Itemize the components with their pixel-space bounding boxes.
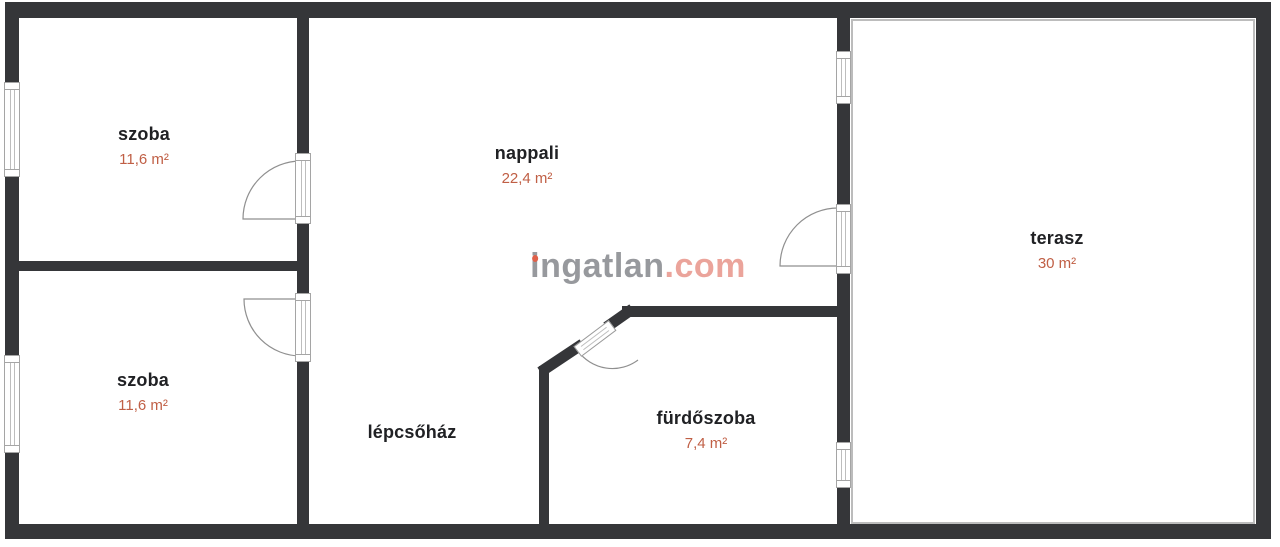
watermark-brand: ingatlan bbox=[530, 248, 664, 284]
watermark-i-dot-icon bbox=[532, 255, 539, 262]
room-label-szoba-top: szoba 11,6 m² bbox=[118, 123, 170, 170]
room-name: szoba bbox=[117, 369, 169, 391]
door-arc-furdoszoba bbox=[578, 351, 638, 369]
door-frame-nappali-terasz bbox=[836, 204, 851, 274]
room-name: terasz bbox=[1030, 227, 1083, 249]
room-area: 11,6 m² bbox=[117, 396, 169, 416]
door-arc-nappali-terasz bbox=[780, 208, 838, 266]
wall-diagonal-upper bbox=[611, 312, 628, 324]
room-name: fürdőszoba bbox=[657, 407, 756, 429]
door-frame-szoba-bottom bbox=[295, 293, 311, 362]
window-furdoszoba-terasz bbox=[836, 442, 851, 488]
window-terasz-top bbox=[836, 51, 851, 104]
floor-plan: szoba 11,6 m² szoba 11,6 m² nappali 22,4… bbox=[0, 0, 1280, 547]
room-label-nappali: nappali 22,4 m² bbox=[495, 142, 559, 189]
room-area: 11,6 m² bbox=[118, 150, 170, 170]
window-szoba-top bbox=[4, 82, 20, 177]
room-area: 7,4 m² bbox=[657, 434, 756, 454]
room-name: nappali bbox=[495, 142, 559, 164]
door-frame-szoba-top bbox=[295, 153, 311, 224]
room-label-furdoszoba: fürdőszoba 7,4 m² bbox=[657, 407, 756, 454]
window-szoba-bottom bbox=[4, 355, 20, 453]
room-name: lépcsőház bbox=[368, 421, 457, 443]
watermark-suffix: .com bbox=[664, 247, 745, 285]
room-label-szoba-bottom: szoba 11,6 m² bbox=[117, 369, 169, 416]
wall-diagonal-lower bbox=[545, 347, 578, 369]
room-name: szoba bbox=[118, 123, 170, 145]
door-arc-szoba-bottom bbox=[244, 299, 301, 356]
room-area: 30 m² bbox=[1030, 254, 1083, 274]
room-area: 22,4 m² bbox=[495, 169, 559, 189]
room-label-terasz: terasz 30 m² bbox=[1030, 227, 1083, 274]
room-label-lepcsohaz: lépcsőház bbox=[368, 421, 457, 443]
door-arc-szoba-top bbox=[243, 161, 301, 219]
watermark: ingatlan.com bbox=[530, 248, 746, 284]
